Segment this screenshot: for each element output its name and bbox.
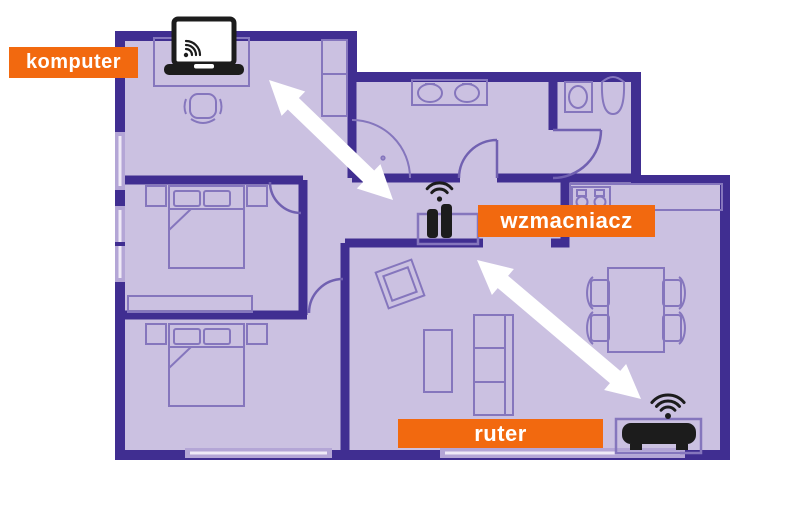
- label-ruter: ruter: [398, 419, 603, 448]
- wifi-floor-plan-diagram: komputer wzmacniacz ruter: [0, 0, 809, 508]
- label-wzmacniacz: wzmacniacz: [478, 205, 655, 237]
- laptop-wifi-icon: [164, 19, 244, 75]
- label-komputer: komputer: [9, 47, 138, 78]
